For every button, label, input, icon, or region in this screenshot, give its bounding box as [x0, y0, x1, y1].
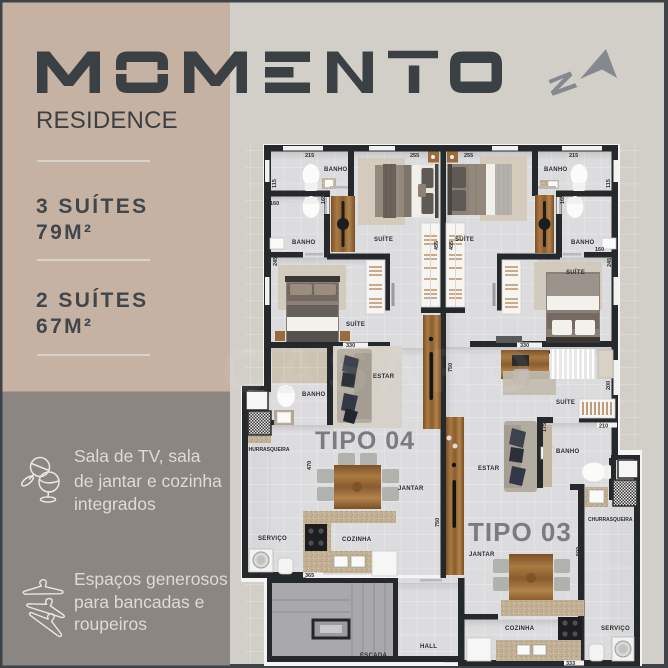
svg-text:SUÍTE: SUÍTE	[566, 268, 585, 276]
svg-text:165: 165	[560, 195, 566, 204]
svg-text:JANTAR: JANTAR	[398, 486, 424, 492]
svg-text:BANHO: BANHO	[544, 167, 568, 173]
svg-text:245: 245	[607, 258, 613, 267]
svg-text:COZINHA: COZINHA	[505, 626, 535, 632]
svg-text:BANHO: BANHO	[571, 240, 595, 246]
svg-text:79M²: 79M²	[36, 221, 93, 244]
svg-text:245: 245	[273, 257, 279, 266]
svg-text:de jantar e cozinha: de jantar e cozinha	[74, 471, 222, 491]
svg-text:SERVIÇO: SERVIÇO	[601, 626, 630, 632]
svg-text:165: 165	[321, 195, 327, 204]
svg-text:CASARO: CASARO	[222, 337, 539, 406]
svg-text:CHURRASQUEIRA: CHURRASQUEIRA	[588, 517, 633, 523]
svg-text:365: 365	[305, 573, 314, 579]
svg-text:160: 160	[595, 247, 604, 253]
svg-text:255: 255	[464, 153, 473, 159]
svg-text:470: 470	[307, 461, 313, 470]
svg-text:SUÍTE: SUÍTE	[374, 235, 393, 243]
svg-text:2 SUÍTES: 2 SUÍTES	[36, 289, 149, 312]
svg-text:Espaços generosos: Espaços generosos	[74, 569, 228, 589]
svg-text:455: 455	[434, 241, 440, 250]
svg-text:BANHO: BANHO	[556, 449, 580, 455]
svg-text:215: 215	[569, 153, 578, 159]
svg-text:SERVIÇO: SERVIÇO	[258, 536, 287, 542]
svg-text:SUÍTE: SUÍTE	[556, 398, 575, 406]
svg-text:500: 500	[576, 547, 582, 556]
svg-text:HALL: HALL	[420, 644, 437, 650]
svg-text:750: 750	[435, 518, 441, 527]
svg-text:TIPO 04: TIPO 04	[315, 427, 415, 455]
svg-text:160: 160	[270, 201, 279, 207]
svg-text:255: 255	[410, 153, 419, 159]
svg-text:Sala de TV, sala: Sala de TV, sala	[74, 446, 201, 466]
svg-text:RESIDENCE: RESIDENCE	[36, 107, 178, 134]
svg-text:integrados: integrados	[74, 494, 156, 514]
svg-text:BANHO: BANHO	[324, 167, 348, 173]
svg-text:para bancadas e: para bancadas e	[74, 592, 204, 612]
svg-text:175: 175	[542, 423, 548, 432]
svg-text:CHURRASQUEIRA: CHURRASQUEIRA	[245, 447, 290, 453]
svg-text:67M²: 67M²	[36, 315, 93, 338]
svg-text:115: 115	[272, 179, 278, 188]
svg-text:SUÍTE: SUÍTE	[346, 320, 365, 328]
svg-text:115: 115	[606, 179, 612, 188]
svg-text:200: 200	[606, 381, 612, 390]
svg-text:TIPO 03: TIPO 03	[468, 517, 572, 547]
svg-text:JANTAR: JANTAR	[469, 552, 495, 558]
svg-text:roupeiros: roupeiros	[74, 614, 147, 634]
svg-text:ESTAR: ESTAR	[373, 374, 395, 380]
svg-text:330: 330	[346, 343, 355, 349]
svg-text:COZINHA: COZINHA	[342, 537, 372, 543]
svg-text:SUÍTE: SUÍTE	[455, 235, 474, 243]
svg-text:ESTAR: ESTAR	[478, 466, 500, 472]
svg-text:3 SUÍTES: 3 SUÍTES	[36, 195, 149, 218]
svg-text:330: 330	[520, 343, 529, 349]
svg-text:333: 333	[566, 661, 575, 667]
svg-text:750: 750	[448, 363, 454, 372]
svg-text:BANHO: BANHO	[302, 392, 326, 398]
svg-text:BANHO: BANHO	[292, 240, 316, 246]
svg-text:210: 210	[599, 424, 608, 430]
svg-text:215: 215	[305, 153, 314, 159]
